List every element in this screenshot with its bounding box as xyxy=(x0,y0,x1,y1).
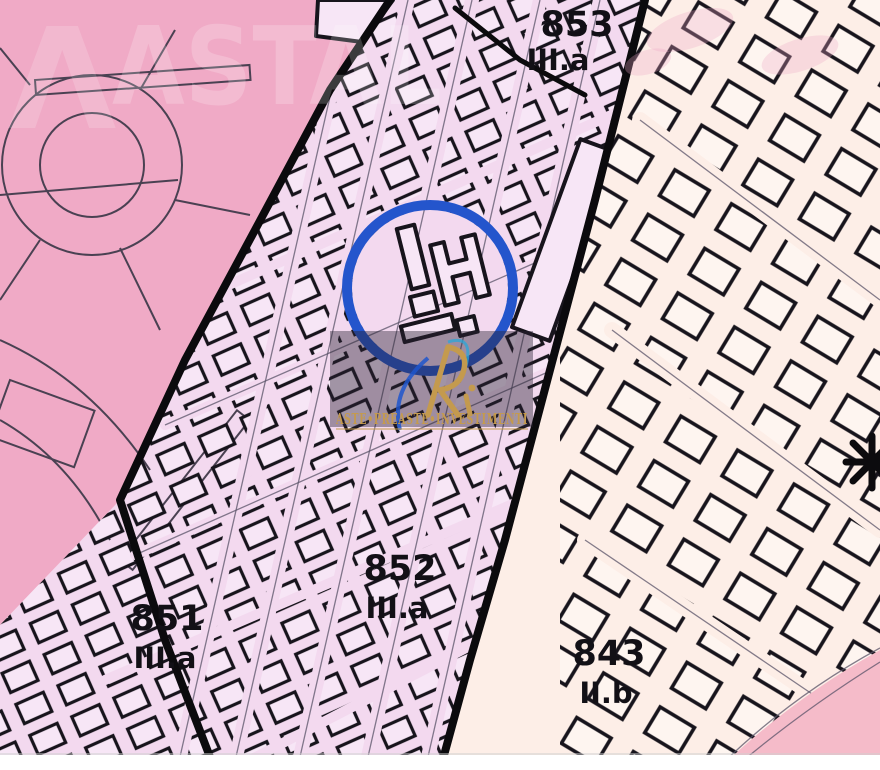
watermark-corner-monogram: Λ xyxy=(8,0,116,162)
cadastral-map-screenshot: 853 III.a 852 III.a 851 III.a 843 II.b Λ… xyxy=(0,0,880,770)
watermark-top-text: ASTAL xyxy=(112,5,442,130)
zone-category: III.a xyxy=(134,641,197,675)
zone-label-852: 852 III.a xyxy=(363,549,436,625)
zone-label-851: 851 III.a xyxy=(130,599,203,675)
zone-category: III.a xyxy=(366,591,429,625)
zone-number: 851 xyxy=(130,599,203,639)
zone-category: III.a xyxy=(527,43,590,77)
cadastral-map: 853 III.a 852 III.a 851 III.a 843 II.b Λ… xyxy=(0,0,880,770)
zone-number: 853 xyxy=(540,5,613,45)
zone-category: II.b xyxy=(579,676,632,710)
brand-text: ASTE•PREASTE•INVESTIMENTI xyxy=(335,410,528,428)
bottom-white-margin xyxy=(0,755,880,770)
zone-number: 843 xyxy=(572,634,645,674)
zone-number: 852 xyxy=(363,549,436,589)
